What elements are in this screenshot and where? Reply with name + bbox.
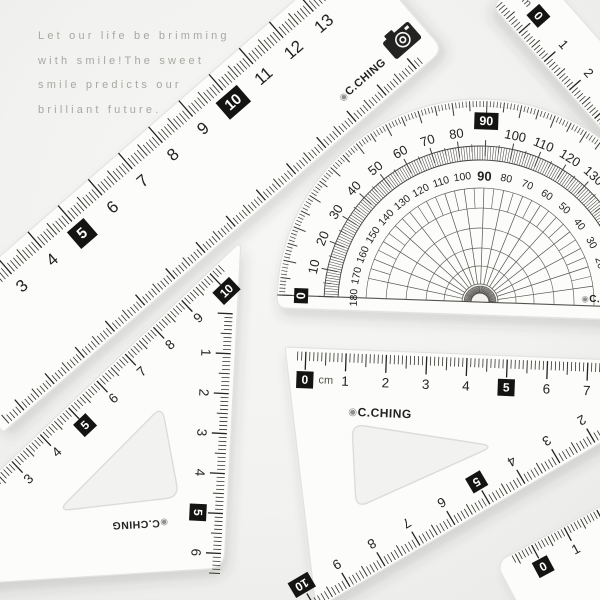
scale-number: 0 bbox=[296, 371, 314, 389]
svg-text:◉C.CHING: ◉C.CHING bbox=[348, 405, 412, 421]
protractor-inner-number: 180 bbox=[348, 288, 361, 306]
scale-number: 6 bbox=[188, 548, 203, 556]
svg-text:1: 1 bbox=[341, 374, 349, 389]
svg-text:4: 4 bbox=[462, 378, 471, 393]
protractor-outer-number: 0 bbox=[294, 288, 309, 303]
svg-text:2: 2 bbox=[381, 375, 389, 390]
scale-number: 5 bbox=[497, 379, 515, 397]
svg-text:6: 6 bbox=[188, 548, 203, 556]
scale-number: 4 bbox=[462, 378, 471, 393]
svg-text:80: 80 bbox=[448, 125, 464, 142]
svg-text:2: 2 bbox=[196, 388, 211, 396]
scale-number: 4 bbox=[192, 468, 207, 477]
svg-text:7: 7 bbox=[583, 383, 591, 398]
scale-number: 7 bbox=[583, 383, 591, 398]
svg-text:4: 4 bbox=[192, 468, 207, 477]
scene-svg: 012cm 345678910111213◉C.CHING 0102030405… bbox=[0, 0, 600, 600]
svg-text:5: 5 bbox=[191, 509, 205, 517]
stationery-photo: Let our life be brimming with smile!The … bbox=[0, 0, 600, 600]
scale-number: 3 bbox=[194, 428, 209, 436]
svg-text:100: 100 bbox=[453, 170, 472, 184]
protractor-outer-number: 80 bbox=[448, 125, 464, 142]
scale-number: 5 bbox=[189, 503, 207, 521]
scale-number: 1 bbox=[341, 374, 349, 389]
svg-text:90: 90 bbox=[479, 114, 493, 128]
scale-number: 1 bbox=[198, 348, 213, 356]
svg-text:3: 3 bbox=[422, 377, 430, 392]
scale-number: 2 bbox=[381, 375, 389, 390]
svg-text:6: 6 bbox=[542, 381, 550, 396]
brand-logo: ◉C.CHING bbox=[348, 405, 412, 421]
svg-text:1: 1 bbox=[198, 348, 213, 356]
svg-text:3: 3 bbox=[194, 428, 209, 436]
svg-text:0: 0 bbox=[294, 292, 308, 299]
protractor-inner-number: 100 bbox=[453, 170, 472, 184]
scale-number: 2 bbox=[196, 388, 211, 396]
svg-text:0: 0 bbox=[301, 373, 309, 387]
svg-text:5: 5 bbox=[503, 380, 511, 394]
protractor-outer-number: 10 bbox=[305, 258, 323, 275]
scale-number: 6 bbox=[542, 381, 550, 396]
unit-label: cm bbox=[318, 374, 333, 387]
protractor-outer-number: 90 bbox=[474, 112, 499, 130]
svg-text:10: 10 bbox=[305, 258, 323, 275]
svg-text:180: 180 bbox=[348, 288, 361, 306]
scale-number: 3 bbox=[422, 377, 430, 392]
protractor-inner-number: 90 bbox=[477, 168, 492, 183]
svg-text:90: 90 bbox=[477, 168, 492, 183]
